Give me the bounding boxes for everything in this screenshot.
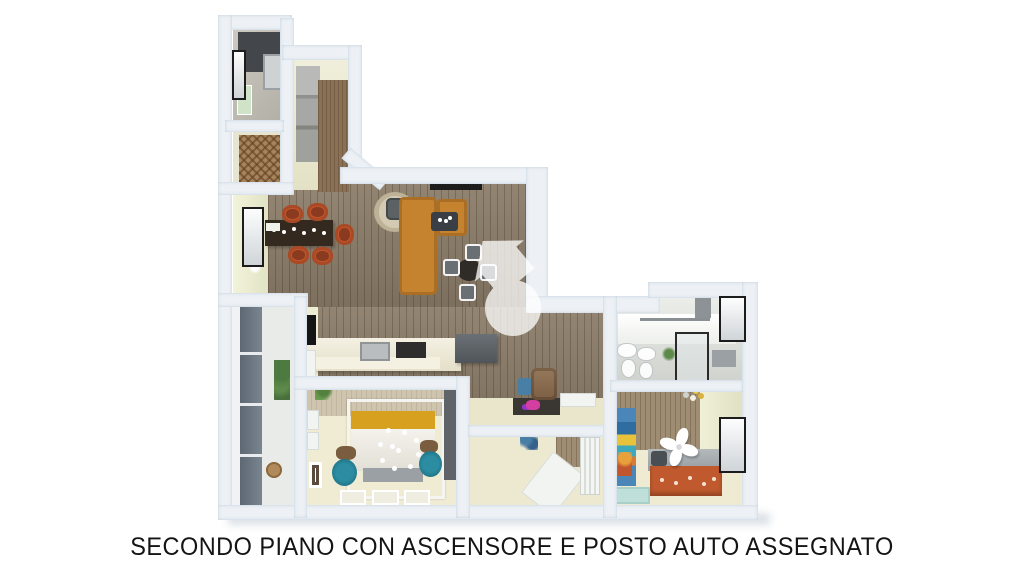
outer-wall-left	[218, 15, 232, 520]
bedroom2-rug-teal	[612, 487, 650, 504]
laundry-window	[232, 50, 246, 100]
framed-photo	[309, 462, 322, 488]
outer-wall-living-top	[340, 167, 548, 184]
kitchen-sink	[360, 342, 390, 361]
dining-chair	[282, 205, 303, 223]
wall-bathroom-bedroom2	[610, 380, 743, 392]
desk-toy-pink	[526, 400, 540, 410]
wall-balcony-inner	[294, 296, 307, 518]
bathroom-plant	[662, 346, 676, 362]
pouf-teal	[419, 451, 442, 477]
sparkle-chandelier-icon	[390, 444, 395, 449]
balcony-plant	[274, 360, 290, 400]
dining-chair	[312, 247, 333, 265]
bed-bench	[363, 468, 423, 482]
floor-mat	[340, 490, 366, 505]
boiler-unit	[695, 298, 711, 318]
pouf-teal	[332, 459, 357, 486]
floor-mat	[404, 490, 430, 505]
study-blue-object	[518, 378, 531, 395]
bathroom-cabinet-gray	[712, 350, 736, 367]
bed-mustard-runner	[351, 411, 435, 431]
balcony-basket	[266, 462, 282, 478]
floor-plan-image: SECONDO PIANO CON ASCENSORE E POSTO AUTO…	[0, 0, 1024, 576]
floor-mat	[372, 490, 399, 505]
sofa-cushion-pattern	[438, 218, 442, 222]
kids-bed-print-dots	[660, 478, 664, 482]
house-logo-watermark-icon	[450, 226, 570, 342]
study-shelf	[560, 393, 596, 407]
shower-enclosure	[675, 332, 709, 383]
kitchen-cooktop	[396, 342, 426, 358]
wall-central-rightwing	[603, 296, 617, 518]
dining-tray	[266, 223, 280, 231]
desk-chair-brown	[531, 368, 557, 400]
caption-text: SECONDO PIANO CON ASCENSORE E POSTO AUTO…	[31, 533, 994, 562]
ceiling-fan-icon	[660, 428, 698, 466]
toilet	[622, 360, 635, 377]
wall-closet-dining	[218, 182, 294, 195]
bathroom-window	[719, 296, 746, 342]
utility-radiator	[581, 438, 599, 494]
bathroom-sink	[618, 344, 636, 357]
corridor-wardrobe-gray	[296, 66, 320, 162]
bedroom2-window	[719, 417, 746, 473]
bathroom-sink	[638, 348, 655, 360]
bidet	[640, 363, 652, 378]
wall-bedroom1-right	[456, 376, 470, 518]
dining-window	[242, 207, 264, 267]
closet-baskets	[239, 135, 283, 182]
wall-kitchen-bedroom1	[294, 376, 468, 390]
wall-picture	[307, 410, 319, 430]
bedroom2-doll	[618, 452, 632, 476]
dining-chair	[335, 224, 354, 245]
balcony-glass-doors	[240, 304, 262, 506]
dining-chair	[288, 246, 309, 264]
storage-basket	[336, 446, 356, 460]
wall-picture	[307, 432, 319, 450]
wall-study-utility	[468, 425, 610, 437]
wall-laundry-closet	[225, 120, 284, 132]
bathroom-mirror-strip	[640, 318, 710, 321]
dining-chair	[307, 203, 328, 221]
